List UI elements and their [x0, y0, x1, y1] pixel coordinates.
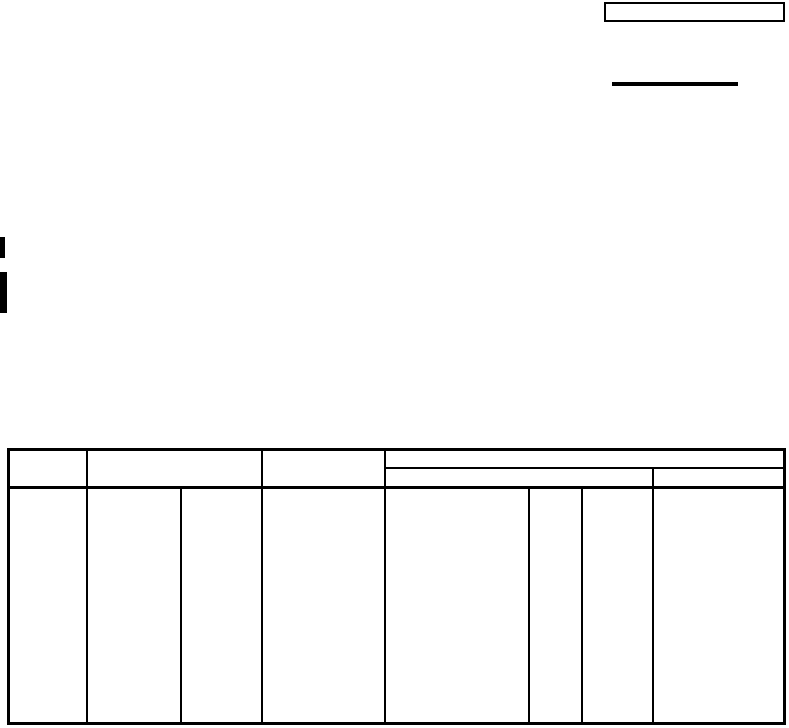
- body-cell-3: [182, 489, 263, 722]
- header-group-sub-right-cell: [654, 469, 783, 486]
- edge-scan-mark-bottom: [0, 272, 7, 313]
- body-cell-8: [654, 489, 783, 722]
- body-cell-5: [386, 489, 530, 722]
- blank-form-table: [7, 448, 786, 725]
- body-cell-2: [88, 489, 182, 722]
- header-cell-b: [88, 451, 263, 486]
- form-table-header-row: [10, 451, 783, 489]
- body-cell-7: [583, 489, 654, 722]
- header-group-section: [386, 451, 783, 486]
- form-table-body-row: [10, 489, 783, 722]
- body-cell-1: [10, 489, 88, 722]
- body-cell-4: [263, 489, 386, 722]
- top-right-entry-box: [604, 2, 785, 22]
- header-group-top-cell: [386, 451, 783, 469]
- body-cell-6: [530, 489, 583, 722]
- horizontal-rule: [612, 82, 738, 86]
- header-group-sub-row: [386, 469, 783, 486]
- header-group-sub-left-cell: [386, 469, 654, 486]
- scanned-blank-form-page: { "page": { "paper_color": "#ffffff", "i…: [0, 0, 789, 728]
- edge-scan-mark-top: [0, 237, 5, 258]
- header-cell-a: [10, 451, 88, 486]
- header-cell-c: [263, 451, 386, 486]
